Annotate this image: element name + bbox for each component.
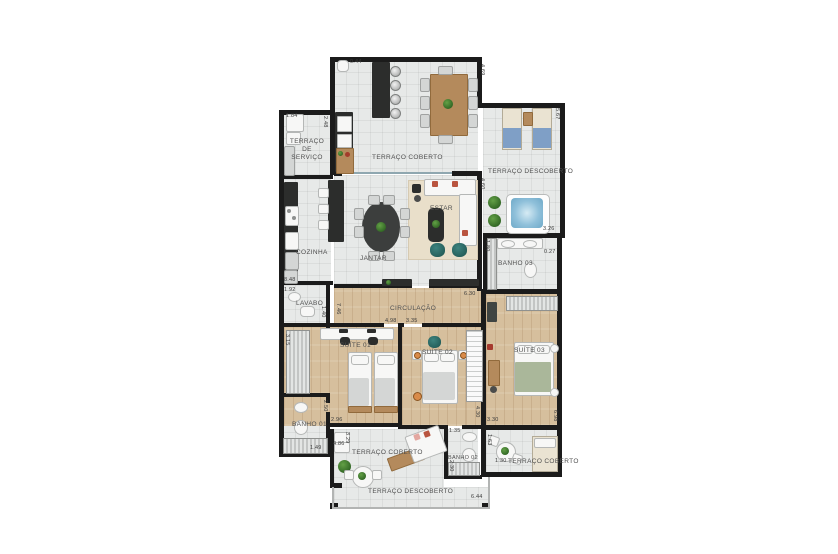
dim-1-63: 1.63	[486, 434, 492, 446]
cushion	[462, 230, 468, 236]
dim-1-84: 1.84	[286, 113, 298, 119]
chair	[400, 208, 410, 220]
tv-console	[429, 279, 479, 286]
dining-chair	[438, 66, 453, 75]
dresser	[487, 302, 497, 322]
side-table	[523, 112, 533, 126]
lounger-towel	[503, 128, 521, 148]
wall	[330, 423, 402, 427]
bed-blanket	[349, 378, 369, 406]
armchair	[452, 243, 467, 257]
dim-1-80: 1.80	[484, 240, 490, 252]
desk	[488, 360, 500, 386]
stool	[413, 392, 422, 401]
room-label-banho-03: BANHO 03	[498, 260, 533, 268]
sink	[462, 432, 477, 442]
burner	[292, 216, 296, 220]
bed-blanket	[515, 362, 551, 392]
room-label-cozinha: COZINHA	[296, 249, 328, 257]
room-label-estar: ESTAR	[430, 205, 453, 213]
dim-6-44: 6.44	[471, 494, 483, 500]
plant	[358, 472, 366, 480]
room-label-banho-01: BANHO 01	[292, 421, 327, 429]
window-glass	[342, 172, 452, 174]
dim-1-35: 1.35	[449, 428, 461, 434]
wall	[557, 236, 562, 293]
dim-8-48: 8.48	[284, 277, 296, 283]
wall	[462, 425, 482, 429]
bottles	[345, 152, 350, 157]
dining-chair	[468, 78, 478, 92]
side-table	[550, 344, 559, 353]
island-stool	[318, 188, 329, 198]
parapet	[332, 487, 334, 509]
chair	[372, 470, 382, 480]
wall	[398, 323, 402, 427]
dim-3-35: 3.35	[406, 318, 418, 324]
closet-shelves	[466, 330, 483, 402]
monitor	[339, 329, 348, 333]
plant	[488, 214, 501, 227]
dim-1-40: 1.40	[320, 306, 326, 318]
plant	[488, 196, 501, 209]
room-label-circulacao: CIRCULAÇÃO	[390, 305, 436, 313]
stool	[490, 386, 497, 393]
parapet	[332, 507, 490, 509]
dining-chair	[420, 96, 430, 110]
plant	[386, 280, 391, 285]
sofa	[459, 194, 477, 246]
chair	[368, 195, 380, 205]
bed-foot	[348, 406, 372, 413]
appliance	[337, 134, 352, 148]
jacuzzi-water	[511, 198, 543, 228]
island-stool	[318, 220, 329, 230]
kitchen-island	[328, 180, 344, 242]
dining-chair	[438, 135, 453, 144]
room-label-terraco-servico: TERRAÇO DE SERVIÇO	[288, 138, 326, 162]
wall	[326, 281, 330, 328]
dim-6-30: 6.30	[464, 291, 476, 297]
dim-4-86: 4.86	[333, 441, 345, 447]
burner	[287, 209, 291, 213]
side-table	[550, 388, 559, 397]
sideboard	[337, 60, 349, 72]
room-label-terraco-descoberto-right: TERRAÇO DESCOBERTO	[488, 168, 573, 176]
pillow	[377, 355, 395, 365]
wall	[398, 425, 448, 429]
cushion	[487, 344, 493, 350]
wall	[452, 171, 479, 176]
island-stool	[318, 204, 329, 214]
side-table	[412, 184, 421, 193]
room-label-jantar: JANTAR	[360, 255, 387, 263]
dining-chair	[468, 96, 478, 110]
dim-2-48: 2.48	[322, 116, 328, 128]
bar-stool	[390, 108, 401, 119]
plant	[338, 151, 343, 156]
dining-chair	[420, 78, 430, 92]
wall	[330, 57, 335, 114]
parapet	[488, 477, 490, 509]
wall	[279, 323, 384, 327]
dim-3-26: 3.26	[543, 226, 555, 232]
dim-3-29: 3.29	[344, 432, 350, 444]
chair	[400, 226, 410, 238]
dim-5-67: 5.67	[554, 108, 560, 120]
dim-1-30: 1.30	[495, 458, 507, 464]
room-label-terraco-coberto-bl: TERRAÇO COBERTO	[352, 449, 423, 457]
plant	[443, 99, 453, 109]
lamp	[414, 195, 421, 202]
beanbag	[428, 336, 441, 348]
armchair	[430, 243, 445, 257]
floor-plan: TERRAÇO DE SERVIÇO COZINHA TERRAÇO COBER…	[0, 0, 838, 554]
bar-counter	[372, 62, 390, 118]
fridge	[337, 116, 352, 132]
dim-6-98: 6.98	[552, 410, 558, 422]
room-label-suite-01: SUÍTE 01	[340, 342, 371, 350]
bar-stool	[390, 94, 401, 105]
dim-1-92: 1.92	[284, 287, 296, 293]
chair	[354, 226, 364, 238]
dim-2-50: 2.50	[322, 400, 328, 412]
dim-3-15: 3.15	[284, 334, 290, 346]
sink	[501, 240, 515, 248]
monitor	[367, 329, 376, 333]
dim-2-30: 2.30	[448, 460, 454, 472]
kitchen-sink	[285, 232, 299, 250]
dim-4-98: 4.98	[385, 318, 397, 324]
lounger-towel	[533, 128, 551, 148]
dim-7-46: 7.46	[335, 303, 341, 315]
desk	[320, 328, 394, 340]
plant	[501, 447, 509, 455]
sink	[294, 402, 308, 413]
bar-stool	[390, 80, 401, 91]
lamp	[414, 352, 421, 359]
dim-1-49: 1.49	[310, 445, 322, 451]
chair	[344, 470, 354, 480]
dim-4-60: 4.60	[479, 178, 485, 190]
plant	[376, 222, 386, 232]
dim-0-27: 0.27	[544, 249, 556, 255]
sink	[523, 240, 537, 248]
dim-4-69: 4.69	[479, 64, 485, 76]
dining-chair	[420, 114, 430, 128]
room-label-terraco-coberto-br: TERRAÇO COBERTO	[508, 458, 579, 466]
room-label-terraco-descoberto-bottom: TERRAÇO DESCOBERTO	[368, 488, 453, 496]
dim-2-96: 2.96	[331, 417, 343, 423]
wall	[422, 323, 482, 327]
dim-0-44: 0.44	[350, 59, 362, 65]
dining-chair	[468, 114, 478, 128]
cushion	[432, 181, 438, 187]
room-label-terraco-coberto-top: TERRAÇO COBERTO	[372, 154, 443, 162]
bed-blanket	[423, 372, 455, 400]
chair	[383, 195, 395, 205]
bed-foot	[374, 406, 398, 413]
dim-3-30: 3.30	[487, 417, 499, 423]
room-label-suite-03: SUÍTE 03	[514, 347, 545, 355]
dim-4-30: 4.30	[474, 406, 480, 418]
pillow	[351, 355, 369, 365]
plant	[432, 220, 440, 228]
room-label-suite-02: SUÍTE 02	[422, 349, 453, 357]
wall	[482, 472, 562, 477]
bar-stool	[390, 66, 401, 77]
cushion	[452, 181, 458, 187]
wall	[486, 425, 562, 430]
wardrobe	[506, 296, 558, 311]
pillow	[534, 438, 556, 448]
chair	[354, 208, 364, 220]
bed-blanket	[375, 378, 395, 406]
